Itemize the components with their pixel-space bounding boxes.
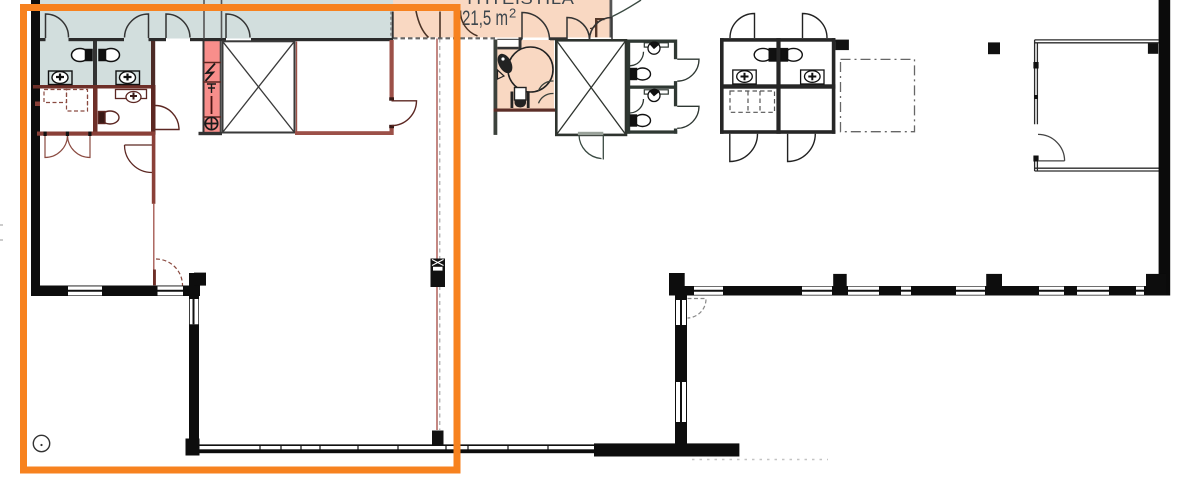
svg-text:21,5 m: 21,5 m (462, 7, 508, 30)
svg-text:2: 2 (509, 6, 516, 21)
